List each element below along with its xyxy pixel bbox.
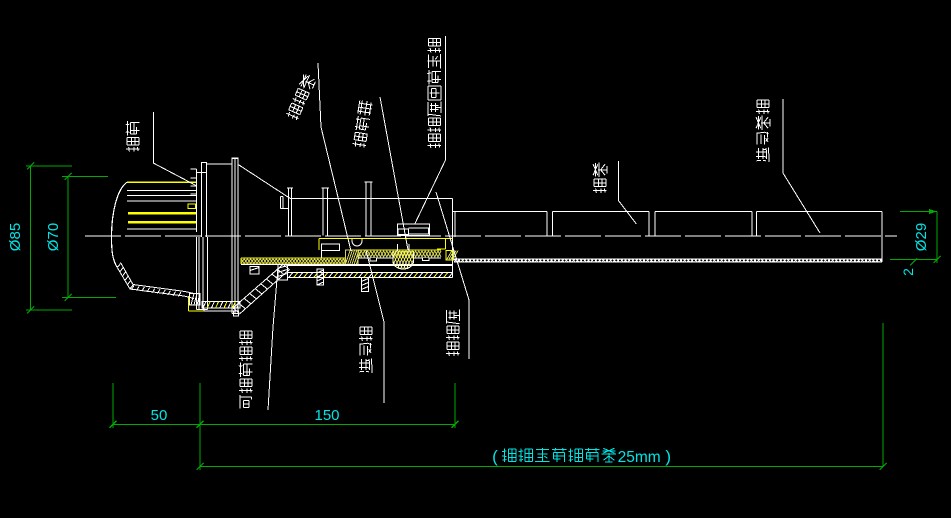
svg-text:25mm: 25mm: [618, 449, 661, 466]
svg-text:Ø29: Ø29: [913, 223, 930, 251]
svg-text:): ): [665, 447, 671, 466]
svg-text:Ø85: Ø85: [7, 223, 24, 251]
svg-text:150: 150: [314, 407, 339, 424]
svg-text:(: (: [492, 447, 498, 466]
svg-text:2: 2: [900, 268, 916, 276]
svg-text:Ø70: Ø70: [45, 223, 62, 251]
svg-text:50: 50: [151, 407, 168, 424]
